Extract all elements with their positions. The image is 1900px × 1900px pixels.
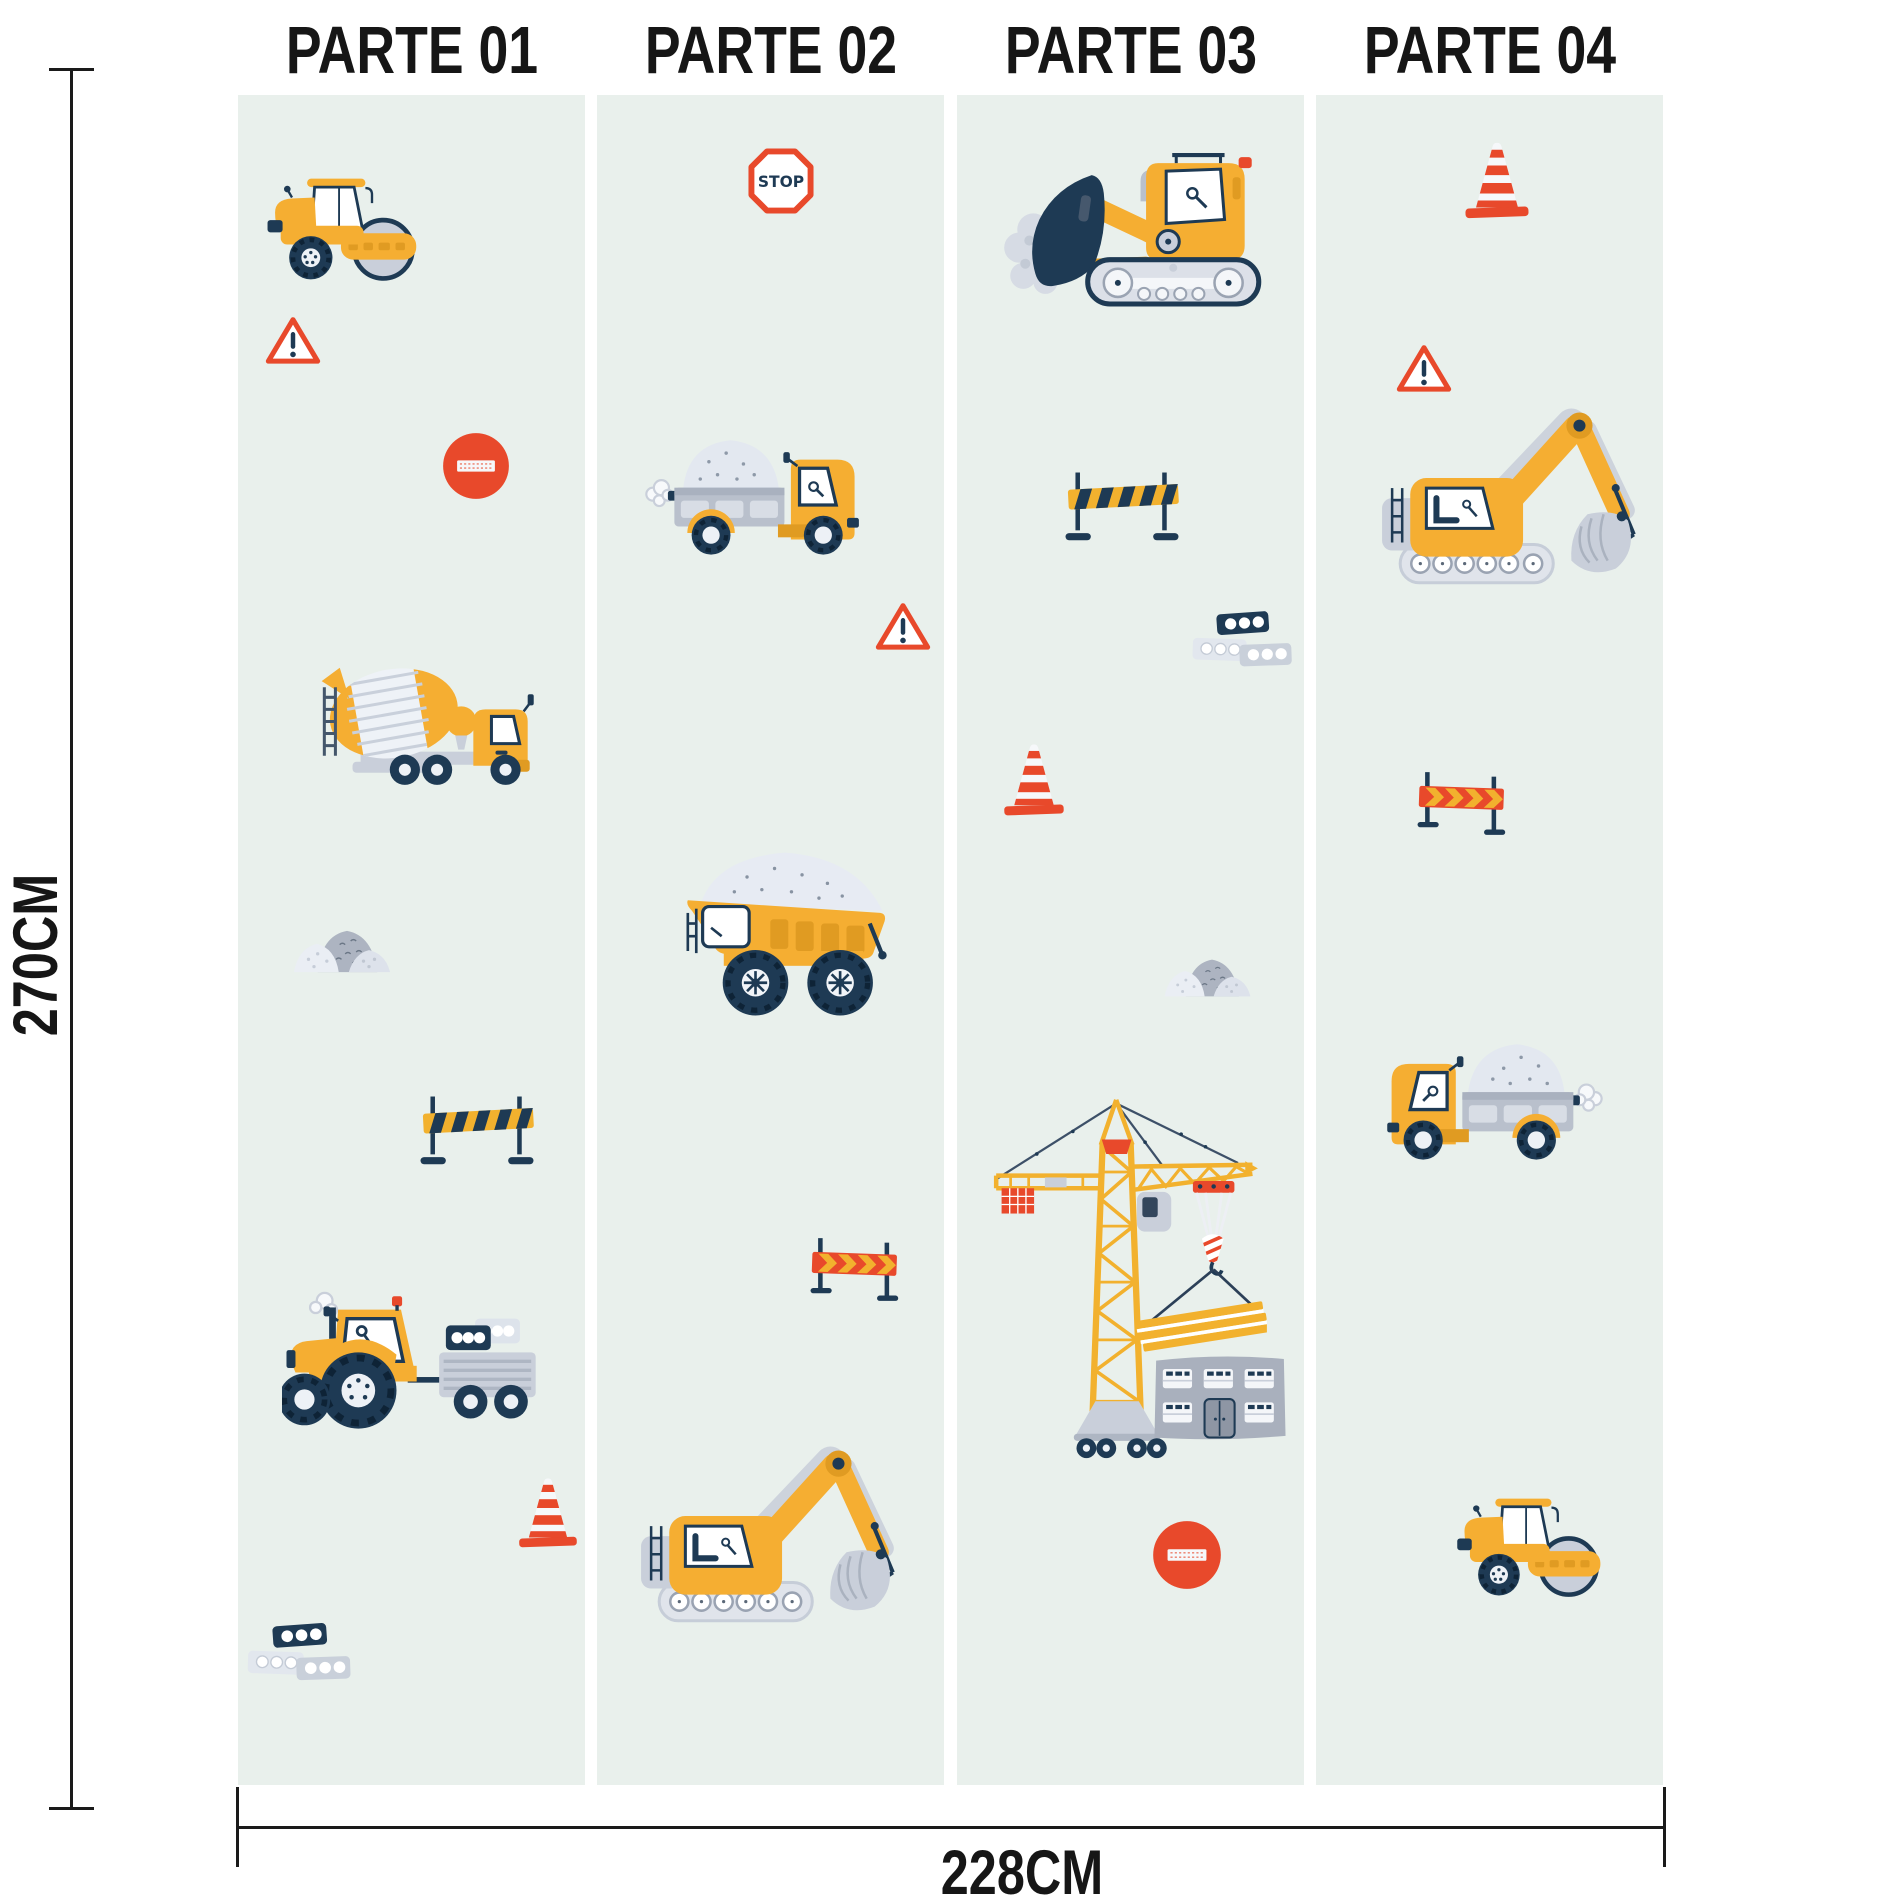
width-dimension-line [237,1826,1665,1829]
panel-label-4: PARTE 04 [1363,12,1615,89]
panel-label-1: PARTE 01 [285,12,537,89]
width-dimension-label: 228CM [941,1837,1103,1900]
panel-4 [1316,95,1663,1785]
cone-illustration [1462,139,1532,220]
panel-1 [238,95,585,1785]
blocks-illustration [246,1621,354,1691]
building-illustration [1151,1349,1289,1445]
cone-illustration [516,1475,580,1549]
truck-illustration [1372,1031,1606,1162]
barrier-yellow-illustration [1061,467,1183,544]
barrier-orange-illustration [1410,769,1512,841]
width-dimension-right-cap [1663,1787,1666,1867]
roller-illustration [260,173,420,286]
wallpaper-panel-diagram: STOP [0,0,1900,1900]
gravel-illustration [1163,949,1261,998]
mixer-illustration [308,651,540,802]
height-dimension-label: 270CM [0,874,72,1036]
panel-2 [597,95,944,1785]
stop-illustration [747,147,815,215]
truck-illustration [642,427,874,557]
excavator-illustration [633,1403,915,1625]
dozer-illustration [995,147,1277,308]
roller-illustration [1450,1493,1604,1602]
panel-label-3: PARTE 03 [1004,12,1256,89]
width-dimension-left-cap [236,1787,239,1867]
panel-label-2: PARTE 02 [644,12,896,89]
warning-illustration [265,315,321,367]
excavator-illustration [1374,365,1656,587]
blocks-illustration [1191,609,1295,677]
height-dimension-top-cap [49,68,94,71]
noentry-illustration [441,431,511,501]
barrier-orange-illustration [803,1235,905,1307]
dump-illustration [673,845,911,1020]
gravel-illustration [292,919,402,974]
height-dimension-bottom-cap [49,1807,94,1810]
tractor-illustration [282,1287,557,1439]
barrier-yellow-illustration [416,1091,538,1168]
cone-illustration [1001,741,1067,817]
noentry-illustration [1151,1519,1223,1591]
warning-illustration [875,601,931,653]
panel-3 [957,95,1304,1785]
